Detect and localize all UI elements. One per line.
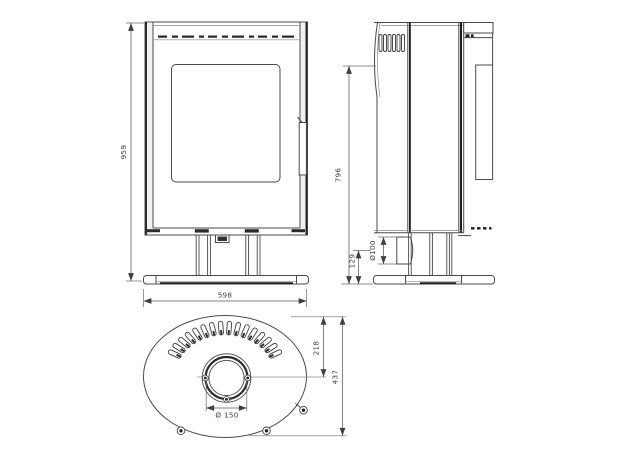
- dim-label-flue-center-offset: 218: [312, 341, 321, 356]
- dim-label-overall-depth: 437: [331, 370, 340, 385]
- rear-flue-housing: [464, 23, 493, 66]
- stove-body-side: [374, 23, 493, 236]
- front-view: 959: [119, 22, 309, 284]
- base-plate-side: [374, 276, 495, 285]
- stove-technical-drawing: 959: [0, 0, 624, 460]
- air-damper-box: [216, 235, 230, 243]
- door-handle: [298, 117, 307, 175]
- top-vent-slots-side: [379, 35, 405, 52]
- dim-label-overall-height: 959: [119, 145, 128, 160]
- dim-label-air-inlet-height: 129: [348, 254, 357, 269]
- pedestal-legs-side: [409, 233, 452, 276]
- side-view: 796 Ø100 129: [334, 23, 495, 285]
- dimension-overall-height: 959: [119, 23, 144, 281]
- door-glass-window: [172, 65, 281, 183]
- dimension-air-inlet-diameter: Ø100: [368, 237, 397, 264]
- top-view: 598 218 437 Ø 150: [144, 289, 347, 438]
- stove-body-front: [145, 22, 308, 243]
- dim-label-overall-width: 598: [218, 291, 233, 300]
- flue-collar: [202, 354, 251, 403]
- rear-heat-shield: [476, 65, 493, 180]
- outside-air-inlet: [397, 237, 413, 264]
- drawing-sheet: 959: [0, 0, 624, 460]
- dim-label-flue-outlet-height: 796: [334, 168, 343, 183]
- base-plate-front: [144, 276, 309, 285]
- dim-label-flue-collar-diameter: Ø 150: [215, 411, 238, 420]
- dimension-overall-width: 598: [144, 289, 307, 307]
